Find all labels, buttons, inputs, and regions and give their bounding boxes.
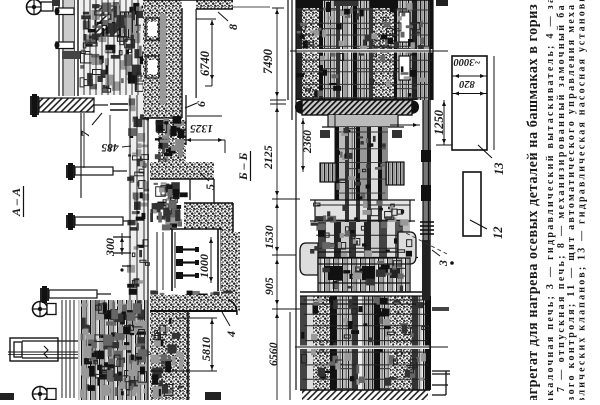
svg-text:820: 820 (458, 78, 475, 89)
svg-text:8: 8 (226, 24, 240, 30)
svg-text:6740: 6740 (198, 50, 212, 76)
svg-text:300: 300 (103, 238, 117, 257)
svg-text:6: 6 (194, 101, 208, 107)
svg-text:6560: 6560 (266, 342, 280, 366)
svg-text:485: 485 (101, 141, 120, 153)
svg-text:905: 905 (262, 277, 276, 295)
svg-text:~3000: ~3000 (453, 56, 481, 67)
svg-text:1000: 1000 (197, 254, 211, 278)
svg-text:акалочная печь; 3 — гидравличе: акалочная печь; 3 — гидравлический вытас… (545, 0, 556, 400)
svg-text:2360: 2360 (302, 130, 314, 154)
svg-text:13: 13 (492, 163, 506, 176)
svg-text:1530: 1530 (262, 225, 276, 249)
svg-text:1250: 1250 (432, 109, 446, 135)
svg-text:4: 4 (224, 331, 238, 338)
svg-text:влических клапанов; 13 — гидра: влических клапанов; 13 — гидравлическая … (577, 0, 588, 400)
svg-text:А – А: А – А (9, 188, 23, 217)
svg-text:3: 3 (436, 260, 450, 267)
svg-text:7490: 7490 (261, 48, 275, 74)
svg-text:Б – Б: Б – Б (236, 152, 250, 181)
svg-text:5: 5 (203, 184, 217, 190)
svg-text:1325: 1325 (190, 122, 213, 134)
svg-text:5810: 5810 (199, 337, 213, 361)
svg-text:7: 7 (78, 130, 92, 137)
svg-text:вого контроля; 11 — щит автома: вого контроля; 11 — щит автоматического … (566, 3, 577, 400)
svg-text:12: 12 (491, 227, 505, 240)
svg-text:2125: 2125 (261, 145, 275, 170)
svg-text:агрегат для нагрева осевых дет: агрегат для нагрева осевых деталей на ба… (525, 4, 541, 400)
